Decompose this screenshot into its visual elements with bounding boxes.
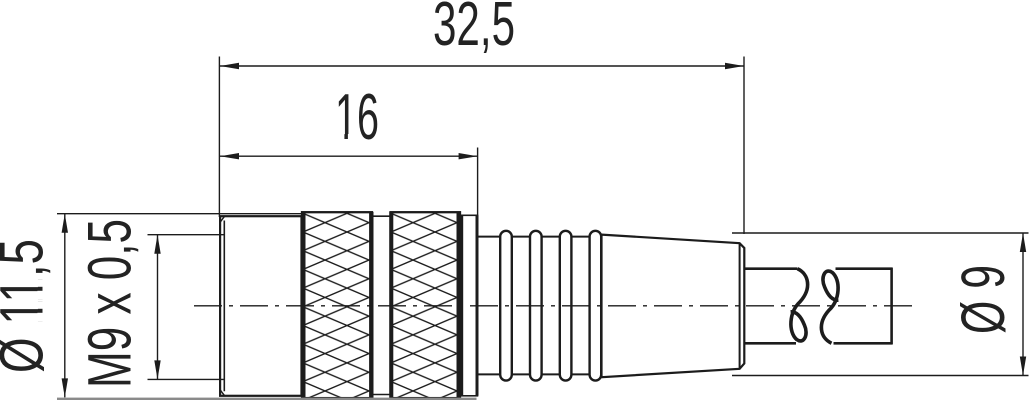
svg-text:M9 x 0,5: M9 x 0,5 (76, 219, 144, 388)
svg-text:Ø 11,5: Ø 11,5 (0, 239, 56, 373)
svg-text:Ø 9: Ø 9 (949, 265, 1017, 334)
svg-text:16: 16 (335, 81, 379, 153)
svg-text:32,5: 32,5 (433, 0, 515, 59)
